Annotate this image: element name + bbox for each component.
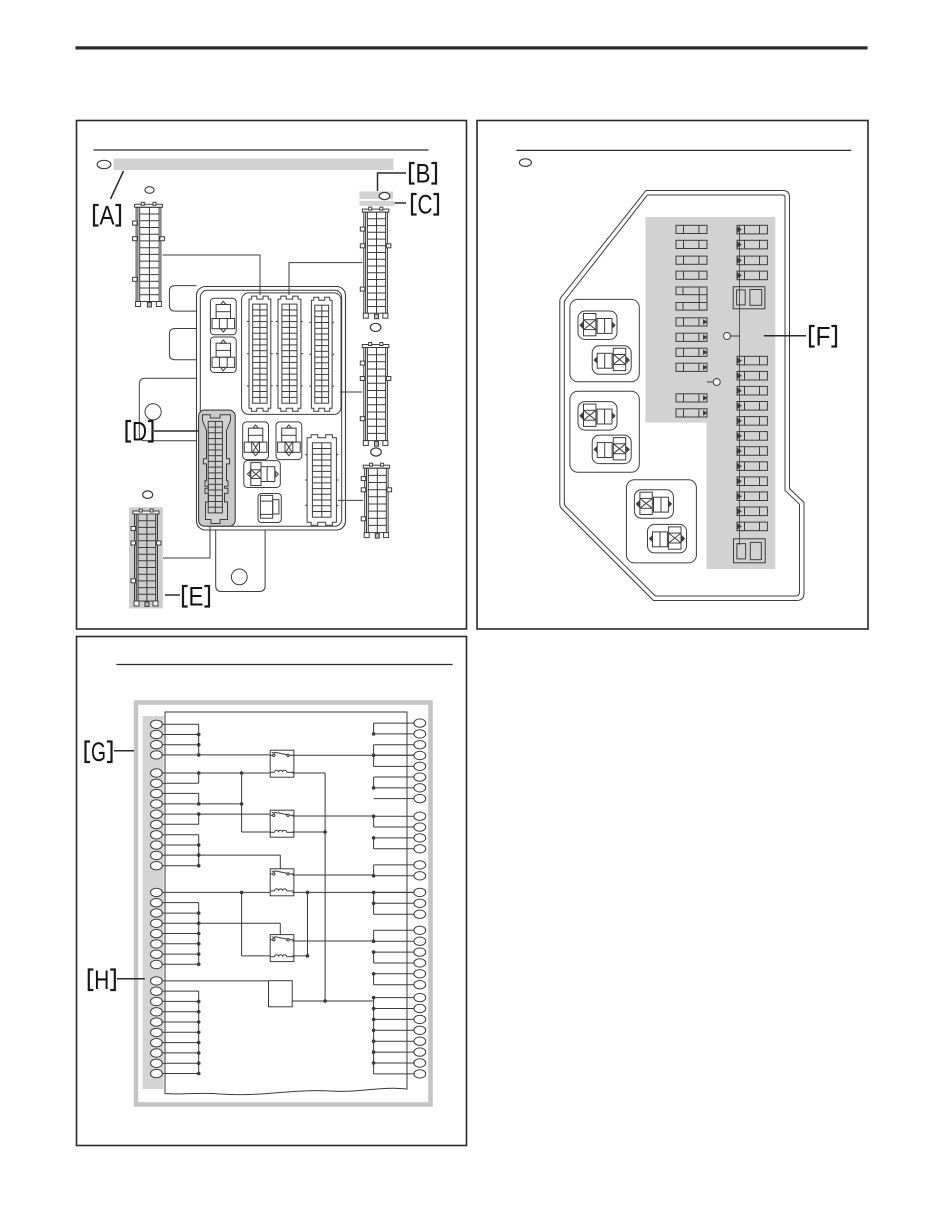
svg-text:E: E: [189, 582, 204, 612]
svg-text:B: B: [416, 159, 431, 189]
svg-text:G: G: [91, 737, 106, 767]
svg-text:H: H: [94, 965, 109, 995]
svg-text:D: D: [132, 417, 147, 447]
svg-text:A: A: [100, 201, 115, 231]
svg-text:C: C: [418, 190, 433, 220]
svg-text:F: F: [816, 322, 831, 352]
